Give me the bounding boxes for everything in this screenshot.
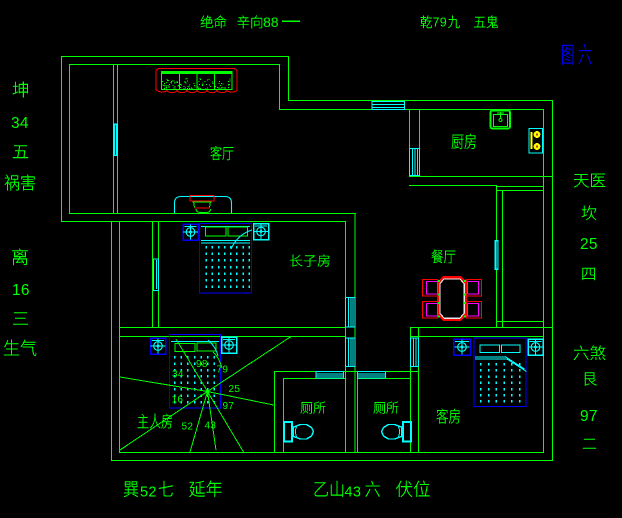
svg-text:34: 34: [172, 369, 184, 380]
svg-text:97: 97: [580, 408, 598, 425]
svg-text:25: 25: [580, 236, 598, 253]
svg-text:34: 34: [11, 115, 29, 132]
svg-text:16: 16: [172, 395, 184, 406]
svg-text:43: 43: [345, 485, 362, 501]
svg-text:43: 43: [205, 421, 217, 432]
svg-text:52: 52: [182, 422, 194, 433]
svg-text:25: 25: [229, 384, 241, 395]
svg-text:97: 97: [223, 401, 235, 412]
svg-text:52: 52: [140, 485, 157, 501]
svg-text:88: 88: [263, 14, 279, 30]
svg-text:79: 79: [433, 16, 448, 30]
svg-text:79: 79: [217, 365, 229, 376]
svg-text:16: 16: [12, 282, 30, 299]
svg-text:98: 98: [196, 359, 208, 370]
